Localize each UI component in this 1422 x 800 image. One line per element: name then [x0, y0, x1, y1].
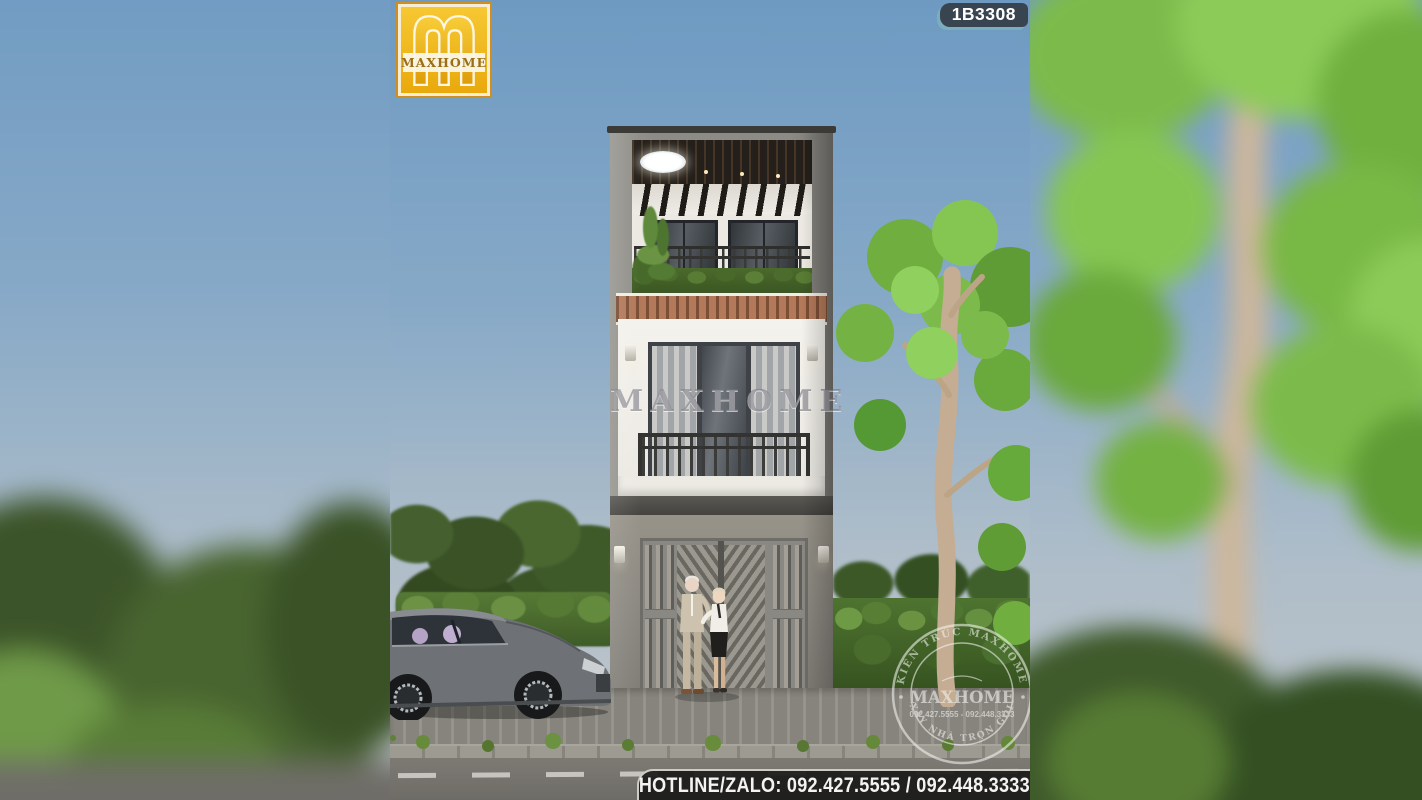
left-blur-panel: [0, 0, 390, 800]
svg-text:XÂY NHÀ TRỌN GÓI: XÂY NHÀ TRỌN GÓI: [907, 702, 1017, 744]
hotline-bar: HOTLINE/ZALO: 092.427.5555 / 092.448.333…: [637, 769, 1030, 800]
right-blur-content: [1030, 0, 1422, 800]
stamp-center-text: MAXHOME: [910, 688, 1015, 707]
hotline-text: HOTLINE/ZALO: 092.427.5555 / 092.448.333…: [639, 774, 1030, 798]
maxhome-m-icon: [405, 9, 483, 89]
maxhome-logo-wordmark: MAXHOME: [403, 53, 485, 72]
stamp-arc-top-text: KIẾN TRÚC MAXHOME: [896, 627, 1029, 686]
render-scene: MAXHOME: [0, 0, 1422, 800]
stamp-flourish: [942, 676, 982, 681]
design-code-badge: 1B3308: [940, 3, 1028, 27]
grass-tufts: [390, 735, 396, 741]
elderly-couple: [672, 572, 742, 704]
blurred-foliage: [1047, 130, 1220, 292]
blurred-foliage: [1030, 270, 1176, 410]
left-blur-content: [0, 0, 390, 800]
man-figure: [680, 576, 708, 695]
stamp-dot: [899, 695, 903, 699]
stamp-phones-text: 092.427.5555 - 092.448.3333: [910, 710, 1016, 719]
circular-watermark-stamp: KIẾN TRÚC MAXHOME XÂY NHÀ TRỌN GÓI MAXHO…: [887, 619, 1030, 769]
parapet-cap: [607, 126, 836, 133]
stamp-arc-bottom-text: XÂY NHÀ TRỌN GÓI: [907, 702, 1017, 744]
blurred-road: [0, 762, 390, 800]
car-seat: [412, 628, 428, 644]
luxury-car: [390, 598, 616, 720]
main-photo: MAXHOME: [390, 0, 1030, 800]
svg-text:KIẾN TRÚC MAXHOME: KIẾN TRÚC MAXHOME: [896, 627, 1029, 686]
stamp-dot: [1021, 695, 1025, 699]
maxhome-logo: MAXHOME: [398, 4, 490, 96]
car-grille: [596, 674, 610, 692]
right-blur-panel: [1030, 0, 1422, 800]
blurred-foliage: [1095, 422, 1225, 541]
